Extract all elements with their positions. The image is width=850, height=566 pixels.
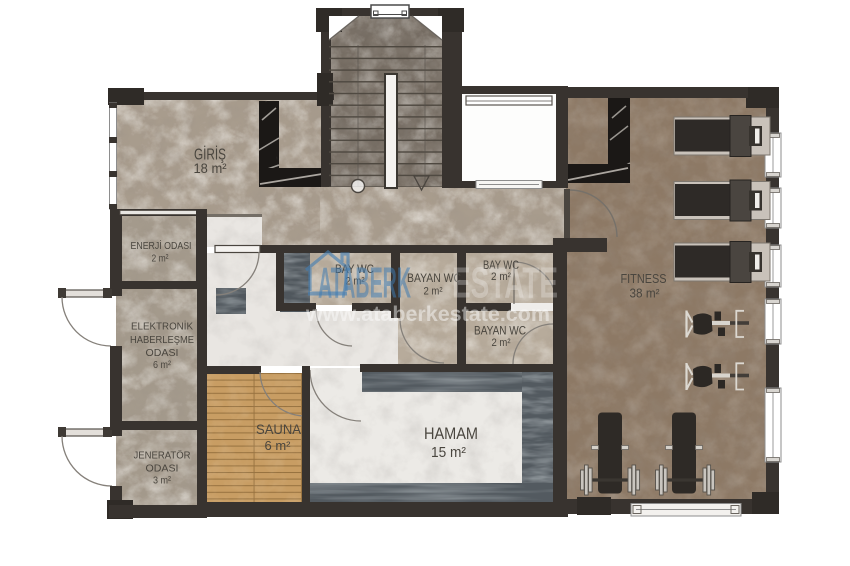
- svg-text:6 m²: 6 m²: [153, 359, 171, 371]
- svg-text:ODASI: ODASI: [146, 463, 179, 475]
- svg-text:2 m²: 2 m²: [152, 253, 169, 265]
- svg-text:ENERJİ ODASI: ENERJİ ODASI: [131, 239, 192, 252]
- svg-text:ODASI: ODASI: [146, 347, 179, 359]
- svg-text:38 m²: 38 m²: [630, 286, 661, 301]
- svg-text:ATABERK: ATABERK: [318, 259, 411, 308]
- svg-text:JENERATÖR: JENERATÖR: [134, 450, 191, 462]
- svg-text:2 m²: 2 m²: [492, 337, 511, 349]
- svg-text:HABERLEŞME: HABERLEŞME: [130, 334, 194, 346]
- svg-text:6 m²: 6 m²: [265, 438, 292, 453]
- svg-text:FITNESS: FITNESS: [621, 271, 667, 286]
- svg-text:18 m²: 18 m²: [194, 161, 227, 176]
- svg-text:ELEKTRONİK: ELEKTRONİK: [131, 320, 193, 333]
- svg-text:ESTATE: ESTATE: [452, 259, 558, 308]
- svg-text:3 m²: 3 m²: [153, 475, 171, 487]
- svg-text:15 m²: 15 m²: [431, 445, 466, 461]
- svg-text:www.ataberkestate.com: www.ataberkestate.com: [305, 303, 550, 326]
- svg-text:2 m²: 2 m²: [424, 286, 443, 298]
- svg-text:HAMAM: HAMAM: [424, 425, 478, 443]
- svg-text:SAUNA: SAUNA: [256, 421, 302, 437]
